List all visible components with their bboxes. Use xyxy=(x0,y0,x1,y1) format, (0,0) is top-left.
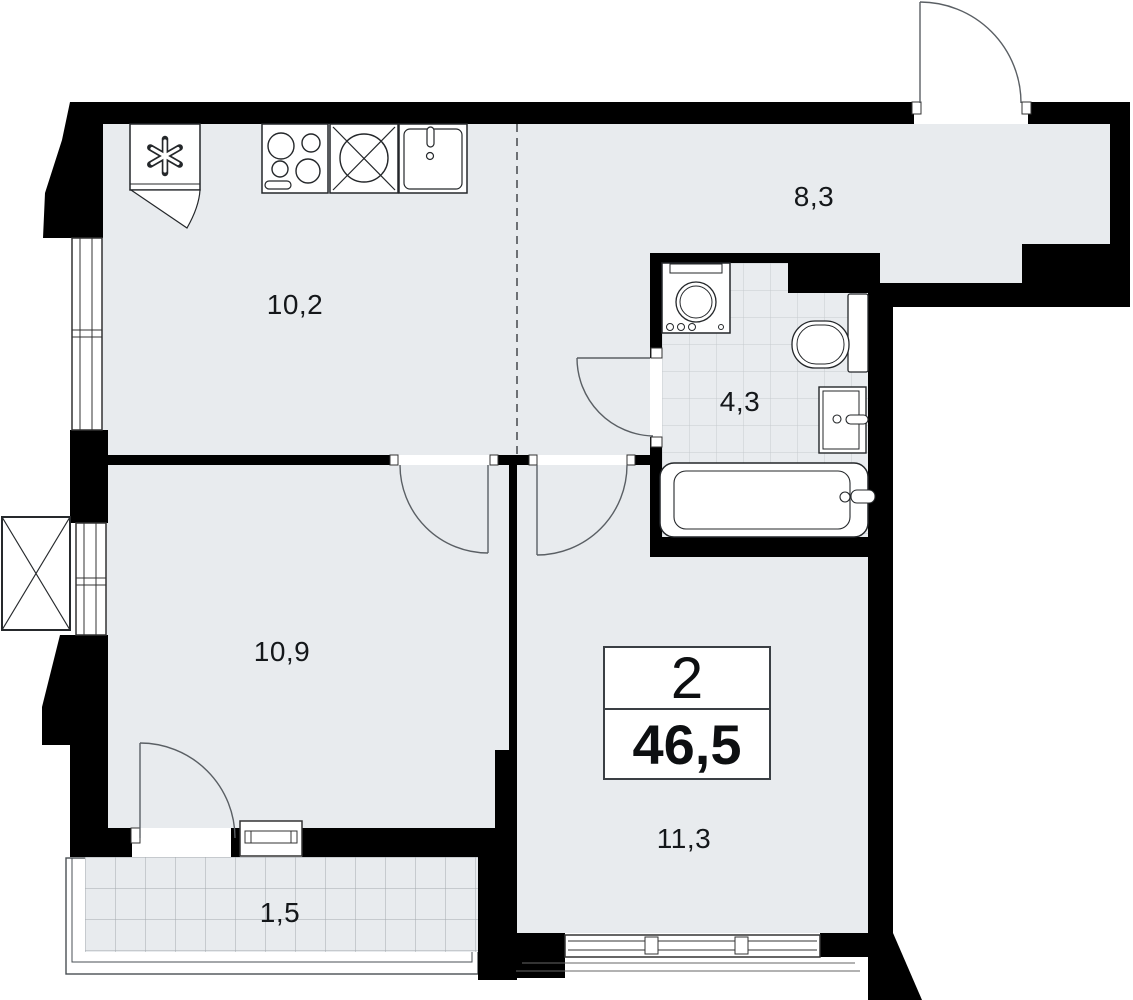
kitchen-window-icon xyxy=(72,238,102,430)
wash-basin-icon xyxy=(819,387,868,453)
ac-basket-icon xyxy=(2,517,70,630)
bathtub-icon xyxy=(660,463,875,537)
floor-plan: 10,2 8,3 4,3 10,9 11,3 1,5 2 46,5 xyxy=(0,0,1133,1000)
floors xyxy=(100,124,1110,933)
stove-icon xyxy=(262,124,328,193)
bedroom-area-label: 10,9 xyxy=(254,636,311,668)
apartment-summary-box: 2 46,5 xyxy=(603,646,771,780)
sink-crossed-icon xyxy=(330,124,398,193)
rooms-count-value: 2 xyxy=(605,648,769,710)
kitchen-sink-icon xyxy=(399,124,467,193)
entrance-door-icon xyxy=(920,2,1021,103)
balcony-block-window-icon xyxy=(240,821,302,856)
hallway-area-label: 8,3 xyxy=(794,181,834,213)
living-room-area-label: 11,3 xyxy=(657,823,711,855)
kitchen-area-label: 10,2 xyxy=(267,289,324,321)
living-room-window-icon xyxy=(516,935,860,971)
bathroom-area-label: 4,3 xyxy=(720,386,760,418)
floor-plan-drawing xyxy=(0,0,1133,1000)
balcony-area-label: 1,5 xyxy=(260,897,300,929)
bedroom-window-icon xyxy=(76,523,106,635)
total-area-value: 46,5 xyxy=(605,710,769,778)
washing-machine-icon xyxy=(662,263,730,333)
